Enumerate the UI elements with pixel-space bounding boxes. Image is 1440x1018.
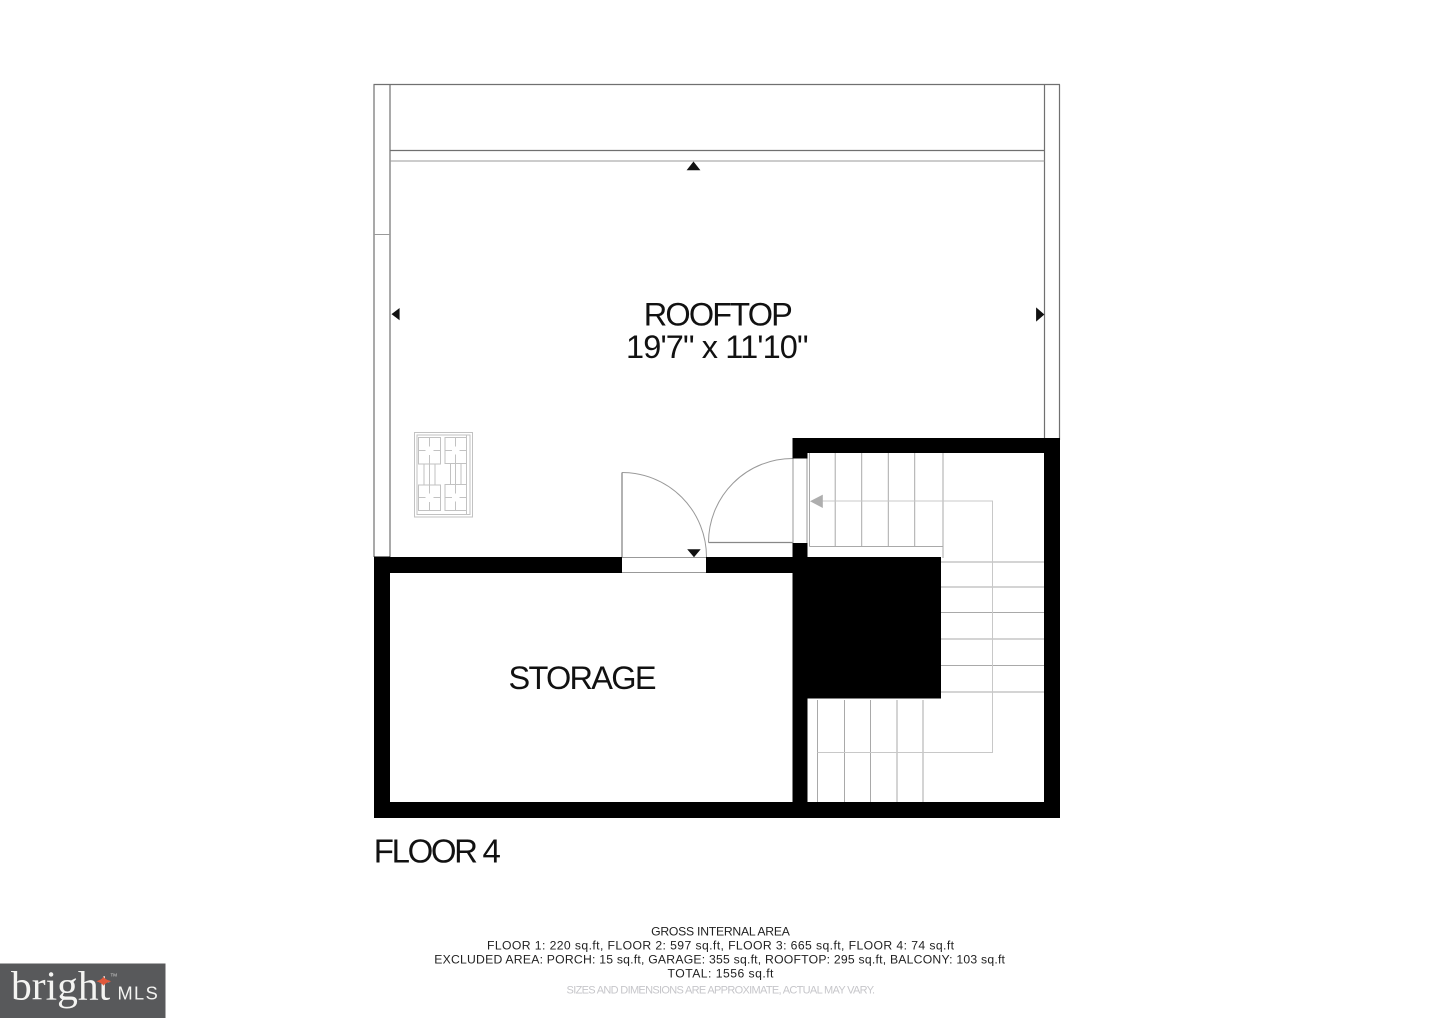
svg-text:TM: TM [111, 973, 118, 978]
svg-text:EXCLUDED AREA: PORCH: 15 sq.ft: EXCLUDED AREA: PORCH: 15 sq.ft, GARAGE: … [434, 953, 1005, 967]
svg-text:STORAGE: STORAGE [509, 660, 657, 696]
svg-text:FLOOR 1: 220 sq.ft, FLOOR 2: 5: FLOOR 1: 220 sq.ft, FLOOR 2: 597 sq.ft, … [487, 939, 955, 953]
svg-text:GROSS INTERNAL AREA: GROSS INTERNAL AREA [651, 924, 791, 938]
svg-text:ROOFTOP: ROOFTOP [644, 297, 793, 333]
svg-text:MLS: MLS [118, 983, 160, 1003]
svg-text:bright: bright [11, 963, 111, 1009]
svg-text:19'7" x 11'10": 19'7" x 11'10" [626, 329, 809, 365]
svg-text:FLOOR 4: FLOOR 4 [374, 833, 501, 870]
svg-text:TOTAL: 1556 sq.ft: TOTAL: 1556 sq.ft [668, 967, 775, 981]
svg-text:SIZES AND DIMENSIONS ARE APPRO: SIZES AND DIMENSIONS ARE APPROXIMATE, AC… [567, 984, 876, 996]
